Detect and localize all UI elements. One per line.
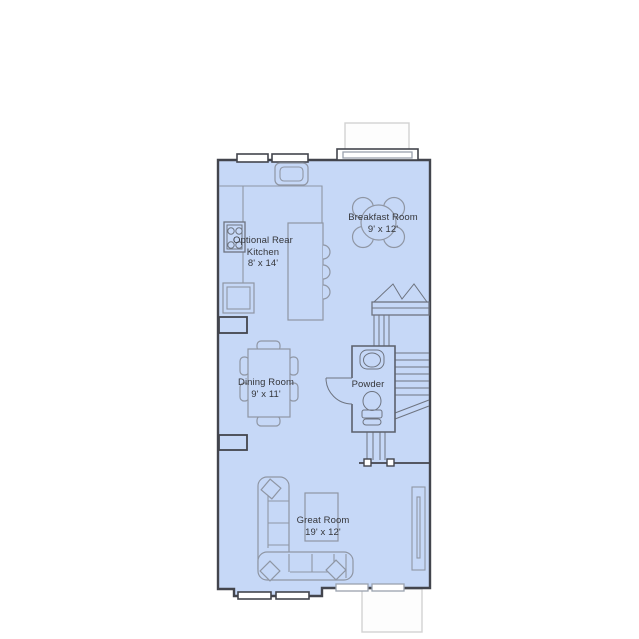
breakfast-room-label: Breakfast Room 9' x 12' (323, 212, 443, 235)
refrigerator (223, 283, 254, 313)
room-name: Great Room (263, 515, 383, 527)
room-name: Breakfast Room (323, 212, 443, 224)
room-dimensions: 9' x 11' (216, 389, 316, 401)
top-windows (237, 154, 308, 162)
bay-window-frame (337, 149, 418, 160)
room-dimensions: 9' x 12' (323, 224, 443, 236)
powder-room-label: Powder (338, 379, 398, 391)
rear-kitchen-label: Optional Rear Kitchen 8' x 14' (232, 235, 294, 270)
dining-room-label: Dining Room 9' x 11' (216, 377, 316, 400)
base-cabinet-lower (219, 435, 247, 450)
room-dimensions: 8' x 14' (232, 258, 294, 270)
entry-porch (362, 589, 422, 632)
floor-plan-canvas: Breakfast Room 9' x 12' Optional Rear Ki… (0, 0, 639, 639)
room-name: Dining Room (216, 377, 316, 389)
floor-plan-drawing (0, 0, 639, 639)
range (275, 163, 308, 185)
great-room-label: Great Room 19' x 12' (263, 515, 383, 538)
room-name: Powder (338, 379, 398, 391)
room-dimensions: 19' x 12' (263, 527, 383, 539)
base-cabinet-upper (219, 317, 247, 333)
room-name: Optional Rear Kitchen (232, 235, 294, 258)
